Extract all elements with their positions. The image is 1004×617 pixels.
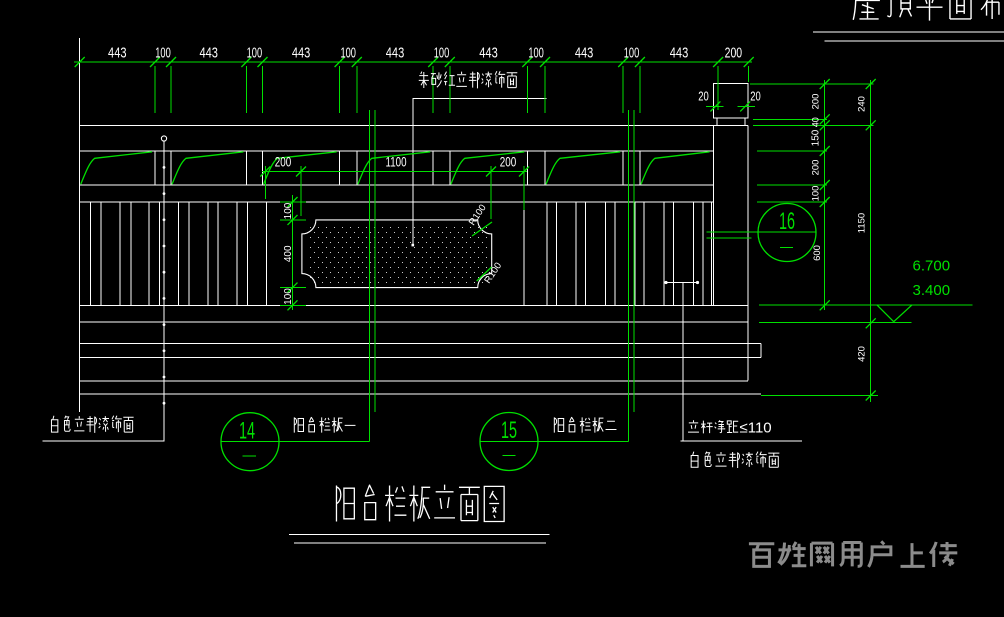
svg-text:15: 15 xyxy=(501,417,517,444)
svg-text:443: 443 xyxy=(670,46,689,62)
svg-text:100: 100 xyxy=(155,46,171,62)
svg-text:200: 200 xyxy=(500,154,517,170)
svg-text:200: 200 xyxy=(275,154,292,170)
svg-text:200: 200 xyxy=(811,160,822,176)
svg-text:443: 443 xyxy=(199,46,218,62)
svg-text:100: 100 xyxy=(434,46,450,62)
svg-text:3.400: 3.400 xyxy=(913,282,951,299)
svg-text:20: 20 xyxy=(698,90,709,104)
svg-text:100: 100 xyxy=(624,46,640,62)
svg-text:443: 443 xyxy=(575,46,594,62)
svg-text:443: 443 xyxy=(108,46,127,62)
svg-text:100: 100 xyxy=(340,46,356,62)
svg-text:200: 200 xyxy=(725,46,743,62)
svg-text:150: 150 xyxy=(811,129,822,146)
svg-text:600: 600 xyxy=(812,245,823,261)
svg-text:1150: 1150 xyxy=(857,213,868,233)
svg-text:16: 16 xyxy=(779,208,795,235)
svg-text:≤110: ≤110 xyxy=(740,420,772,437)
svg-text:100: 100 xyxy=(811,186,822,202)
svg-text:100: 100 xyxy=(247,46,263,62)
svg-text:400: 400 xyxy=(283,245,294,262)
svg-text:14: 14 xyxy=(239,418,255,445)
svg-text:420: 420 xyxy=(857,346,868,362)
svg-text:100: 100 xyxy=(283,202,294,219)
svg-text:443: 443 xyxy=(292,46,311,62)
svg-text:443: 443 xyxy=(386,46,405,62)
svg-text:100: 100 xyxy=(283,288,294,305)
svg-text:1100: 1100 xyxy=(386,154,407,170)
svg-text:443: 443 xyxy=(479,46,498,62)
svg-text:40: 40 xyxy=(811,117,821,127)
svg-text:240: 240 xyxy=(857,96,868,112)
svg-text:6.700: 6.700 xyxy=(913,258,951,275)
svg-text:100: 100 xyxy=(528,46,544,62)
svg-text:200: 200 xyxy=(811,94,822,110)
svg-text:20: 20 xyxy=(750,90,761,104)
